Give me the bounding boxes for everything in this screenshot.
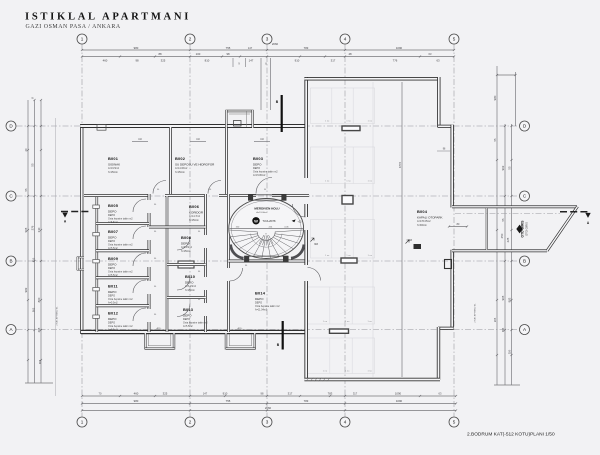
svg-text:783: 783	[304, 399, 309, 403]
svg-text:5: 5	[453, 420, 456, 425]
svg-text:A=6.15m2: A=6.15m2	[181, 246, 193, 249]
svg-text:2060: 2060	[265, 406, 272, 410]
svg-text:B012: B012	[108, 311, 119, 316]
svg-text:SIGINAK: SIGINAK	[108, 163, 120, 167]
svg-text:980: 980	[493, 95, 497, 100]
svg-text:6772: 6772	[398, 161, 402, 168]
svg-text:4: 4	[344, 420, 347, 425]
svg-text:Onta hepsine takim m2: Onta hepsine takim m2	[108, 325, 133, 328]
svg-text:376: 376	[31, 225, 35, 230]
svg-text:2: 2	[189, 37, 192, 42]
svg-text:A=14.7m2: A=14.7m2	[189, 215, 201, 218]
svg-text:980: 980	[134, 399, 139, 403]
svg-text:250: 250	[500, 233, 504, 238]
svg-text:2060: 2060	[272, 42, 279, 46]
svg-text:A=5.5m2: A=5.5m2	[108, 302, 118, 305]
svg-text:A=5.5m2: A=5.5m2	[108, 247, 118, 250]
svg-text:KAPALI OTOPARK: KAPALI OTOPARK	[417, 216, 443, 220]
svg-text:A=15.80m2: A=15.80m2	[253, 174, 266, 177]
svg-text:Onta hepsine takim m2: Onta hepsine takim m2	[108, 243, 133, 246]
svg-text:h=150cm: h=150cm	[181, 250, 191, 253]
svg-text:B002: B002	[175, 156, 186, 161]
svg-text:800: 800	[37, 297, 41, 302]
svg-text:A=6.15m2: A=6.15m2	[185, 285, 197, 288]
svg-text:h=300cm: h=300cm	[417, 224, 427, 227]
svg-text:B008: B008	[181, 235, 192, 240]
svg-text:MERDIVEN HOLU: MERDIVEN HOLU	[254, 207, 279, 211]
svg-text:310: 310	[32, 257, 36, 262]
svg-text:Onta hepsine takim m2: Onta hepsine takim m2	[108, 298, 133, 301]
svg-text:W: W	[254, 218, 258, 223]
svg-text:55: 55	[31, 163, 35, 167]
svg-text:B003: B003	[253, 156, 264, 161]
svg-text:A=19.06m2: A=19.06m2	[256, 211, 268, 214]
svg-text:AYD.: AYD.	[157, 327, 162, 330]
svg-text:A=11.04m2: A=11.04m2	[255, 309, 268, 312]
svg-text:310: 310	[37, 227, 41, 232]
svg-text:4: 4	[344, 37, 347, 42]
svg-text:T.K/A.26/78: T.K/A.26/78	[263, 220, 277, 223]
svg-text:A=5.5m2: A=5.5m2	[108, 329, 118, 332]
svg-text:55: 55	[508, 166, 512, 170]
svg-text:B010: B010	[185, 274, 195, 279]
svg-text:B006: B006	[189, 204, 200, 209]
svg-text:2: 2	[189, 420, 192, 425]
svg-text:5: 5	[453, 37, 456, 42]
svg-text:1: 1	[81, 37, 84, 42]
svg-text:460: 460	[103, 58, 108, 62]
svg-text:Onta hepsine takim m2: Onta hepsine takim m2	[183, 321, 208, 324]
svg-text:3: 3	[266, 37, 269, 42]
svg-text:810: 810	[205, 58, 210, 62]
svg-text:147: 147	[249, 58, 254, 62]
svg-text:A=14.06m2: A=14.06m2	[175, 167, 188, 170]
svg-text:905: 905	[24, 227, 28, 232]
svg-text:350: 350	[508, 349, 512, 354]
svg-text:783: 783	[304, 46, 309, 50]
svg-text:147: 147	[203, 392, 208, 396]
svg-text:755: 755	[226, 399, 231, 403]
svg-text:h=150cm: h=150cm	[108, 171, 118, 174]
svg-text:B004: B004	[417, 209, 428, 214]
svg-text:317: 317	[353, 392, 358, 396]
svg-text:B005: B005	[108, 203, 119, 208]
svg-text:Onta hepsine takim m2: Onta hepsine takim m2	[108, 217, 133, 220]
svg-text:SU DEPOSU VE HIDROFOR: SU DEPOSU VE HIDROFOR	[175, 163, 215, 167]
svg-text:147: 147	[248, 46, 253, 50]
svg-text:A=5.5m2: A=5.5m2	[108, 221, 118, 224]
svg-text:983: 983	[508, 297, 512, 302]
svg-text:325: 325	[161, 58, 166, 62]
svg-text:903: 903	[501, 165, 505, 170]
svg-text:h=150cm: h=150cm	[175, 171, 185, 174]
svg-text:783: 783	[328, 392, 333, 396]
svg-text:ISTIKLAL APARTMANI: ISTIKLAL APARTMANI	[25, 12, 191, 23]
svg-text:Onta hepsine takim m2: Onta hepsine takim m2	[253, 170, 278, 173]
svg-text:755: 755	[226, 46, 231, 50]
svg-text:317: 317	[331, 58, 336, 62]
svg-text:48: 48	[348, 52, 352, 56]
svg-text:h=150cm: h=150cm	[189, 219, 199, 222]
svg-text:A=19.5m2: A=19.5m2	[108, 167, 120, 170]
svg-text:GAZI OSMAN PASA / ANKARA: GAZI OSMAN PASA / ANKARA	[26, 24, 121, 30]
svg-text:2.KAT AP PANO EL: 2.KAT AP PANO EL	[56, 306, 59, 326]
svg-text:98: 98	[135, 58, 139, 62]
svg-text:OTO GIRIS: OTO GIRIS	[524, 222, 528, 236]
svg-text:h=150cm: h=150cm	[185, 289, 195, 292]
svg-text:225: 225	[506, 237, 510, 242]
svg-text:B013: B013	[183, 307, 194, 312]
svg-text:2.BODRUM KAT(-512 KOTU)PLANI 1: 2.BODRUM KAT(-512 KOTU)PLANI 1/50	[467, 432, 555, 438]
svg-text:1090: 1090	[396, 46, 403, 50]
svg-text:OTO GIRIS: OTO GIRIS	[521, 220, 525, 238]
svg-text:1090: 1090	[396, 399, 403, 403]
svg-text:B011: B011	[108, 284, 119, 289]
svg-text:910: 910	[223, 392, 228, 396]
svg-text:460: 460	[134, 392, 139, 396]
svg-text:DEPO: DEPO	[185, 281, 194, 285]
svg-text:B014: B014	[255, 291, 266, 296]
svg-text:905: 905	[501, 295, 505, 300]
svg-text:910: 910	[295, 58, 300, 62]
svg-text:205: 205	[37, 327, 41, 332]
svg-text:100: 100	[196, 52, 201, 56]
svg-text:325: 325	[163, 392, 168, 396]
svg-text:B001: B001	[108, 156, 119, 161]
svg-text:980: 980	[134, 46, 139, 50]
svg-text:905: 905	[501, 327, 505, 332]
svg-text:AYD.: AYD.	[238, 327, 243, 330]
svg-text:317: 317	[288, 392, 293, 396]
svg-text:98: 98	[226, 52, 230, 56]
svg-text:A=5.5m2: A=5.5m2	[183, 325, 193, 328]
svg-text:1: 1	[81, 420, 84, 425]
svg-text:A=5.5m2: A=5.5m2	[108, 274, 118, 277]
svg-text:A=476.05m2: A=476.05m2	[417, 220, 431, 223]
svg-text:983: 983	[24, 287, 28, 292]
svg-text:B: B	[9, 259, 12, 264]
svg-text:3: 3	[266, 420, 269, 425]
svg-text:905: 905	[38, 359, 42, 364]
svg-text:1090: 1090	[395, 392, 402, 396]
svg-text:2.KAT AP PANO EL: 2.KAT AP PANO EL	[474, 303, 477, 323]
svg-text:KORIDOR: KORIDOR	[189, 211, 204, 215]
svg-text:88: 88	[158, 52, 162, 56]
svg-text:B: B	[523, 259, 526, 264]
svg-text:DEPO: DEPO	[181, 242, 190, 246]
svg-text:776: 776	[393, 58, 398, 62]
svg-text:B009: B009	[108, 256, 119, 261]
svg-text:905: 905	[32, 307, 36, 312]
svg-text:205: 205	[493, 317, 497, 322]
svg-text:63: 63	[436, 58, 440, 62]
svg-text:Onta hepsine takim m2: Onta hepsine takim m2	[108, 270, 133, 273]
svg-text:Onta hepsine takim m2: Onta hepsine takim m2	[255, 305, 280, 308]
svg-text:B007: B007	[108, 229, 118, 234]
